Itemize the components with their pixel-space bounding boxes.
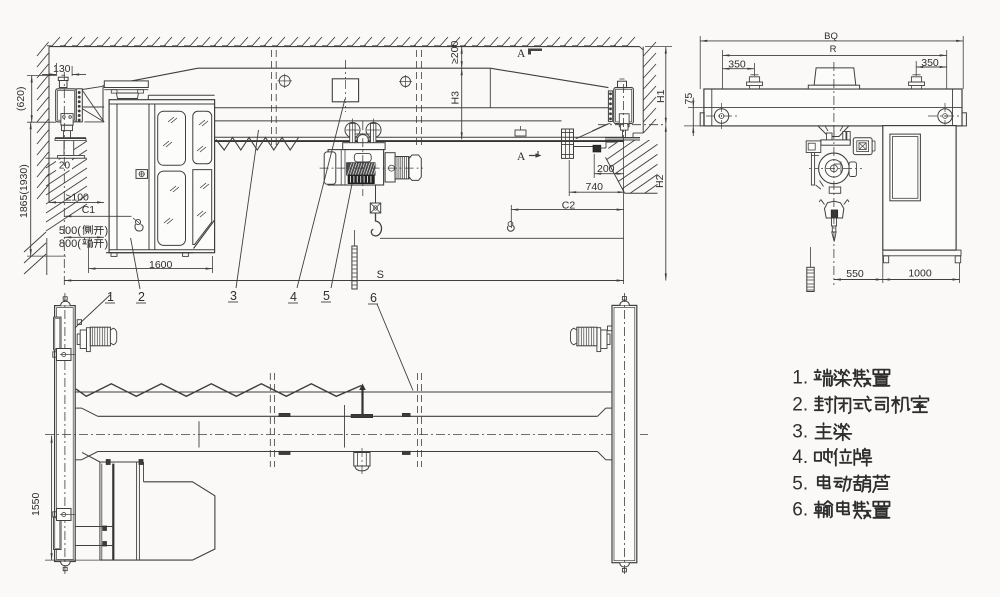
svg-text:(620): (620)	[15, 86, 27, 111]
svg-text:1600: 1600	[149, 259, 173, 271]
svg-text:5.: 5.	[792, 474, 808, 495]
svg-text:≥200: ≥200	[449, 41, 461, 64]
svg-text:3.: 3.	[792, 422, 808, 443]
svg-text:H2: H2	[654, 174, 666, 188]
svg-text:1000: 1000	[908, 268, 932, 280]
svg-text:800(: 800(	[59, 238, 81, 250]
svg-text:4: 4	[290, 290, 297, 304]
svg-text:500(: 500(	[59, 225, 81, 237]
svg-text:≥100: ≥100	[66, 192, 89, 204]
svg-text:1865(1930): 1865(1930)	[18, 164, 30, 218]
svg-text:H3: H3	[450, 91, 462, 105]
svg-text:BQ: BQ	[824, 31, 838, 42]
svg-text:1.: 1.	[792, 368, 808, 389]
svg-text:5: 5	[323, 289, 330, 303]
svg-text:6: 6	[370, 291, 377, 305]
svg-text:1550: 1550	[30, 492, 42, 516]
svg-text:550: 550	[846, 268, 864, 280]
svg-text:4.: 4.	[792, 447, 808, 468]
svg-text:130: 130	[53, 63, 71, 75]
svg-text:S: S	[377, 269, 384, 281]
svg-text:): )	[105, 238, 109, 250]
svg-text:H1: H1	[655, 89, 667, 103]
svg-text:A: A	[517, 151, 526, 163]
svg-text:A: A	[517, 48, 526, 60]
svg-text:): )	[105, 225, 109, 237]
svg-text:C1: C1	[82, 204, 96, 216]
svg-text:R: R	[830, 44, 837, 55]
svg-text:740: 740	[586, 181, 604, 193]
svg-text:6.: 6.	[792, 500, 808, 521]
svg-text:2: 2	[138, 290, 145, 304]
svg-text:3: 3	[230, 289, 237, 303]
svg-text:2.: 2.	[792, 395, 808, 416]
